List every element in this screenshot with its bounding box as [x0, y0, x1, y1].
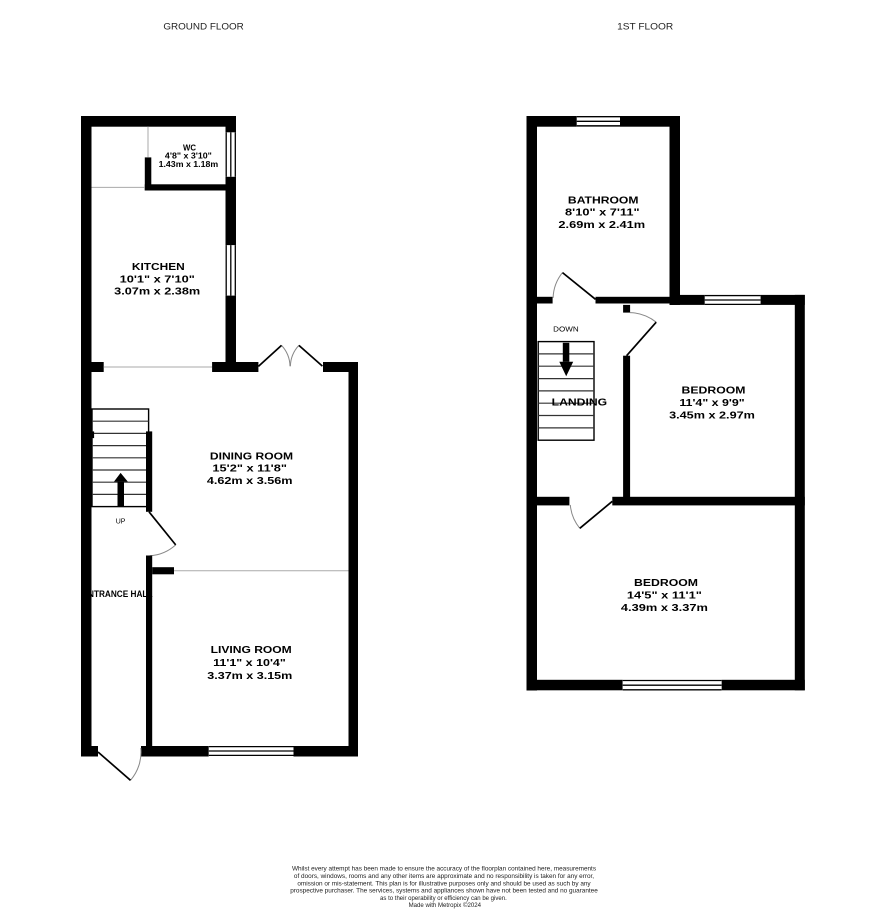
svg-text:1.43m x 1.18m: 1.43m x 1.18m — [159, 160, 219, 169]
svg-text:BATHROOM: BATHROOM — [568, 194, 639, 206]
svg-text:3.07m x 2.38m: 3.07m x 2.38m — [114, 286, 200, 298]
svg-text:BEDROOM: BEDROOM — [634, 577, 698, 589]
svg-text:omission or mis-statement. Thi: omission or mis-statement. This plan is … — [297, 880, 591, 887]
svg-text:DINING ROOM: DINING ROOM — [210, 450, 293, 462]
svg-text:LANDING: LANDING — [552, 397, 608, 409]
svg-text:of doors, windows, rooms and a: of doors, windows, rooms and any other i… — [294, 873, 594, 880]
svg-text:Made with Metropix ©2024: Made with Metropix ©2024 — [409, 901, 482, 909]
svg-text:4.62m x 3.56m: 4.62m x 3.56m — [207, 475, 293, 487]
svg-text:15'2" x 11'8": 15'2" x 11'8" — [212, 463, 287, 475]
svg-text:UP: UP — [116, 517, 126, 526]
svg-text:3.37m x 3.15m: 3.37m x 3.15m — [207, 670, 292, 682]
svg-text:as to their operability or eff: as to their operability or efficiency ca… — [380, 895, 507, 902]
svg-text:KITCHEN: KITCHEN — [132, 261, 185, 273]
svg-text:BEDROOM: BEDROOM — [682, 384, 746, 396]
svg-text:2.69m x 2.41m: 2.69m x 2.41m — [558, 219, 645, 231]
svg-text:ENTRANCE HALL: ENTRANCE HALL — [83, 589, 153, 599]
svg-text:11'1" x 10'4": 11'1" x 10'4" — [213, 657, 286, 669]
svg-text:LIVING ROOM: LIVING ROOM — [211, 644, 292, 656]
svg-text:8'10" x 7'11": 8'10" x 7'11" — [565, 207, 640, 219]
svg-text:DOWN: DOWN — [553, 325, 579, 334]
svg-text:11'4" x 9'9": 11'4" x 9'9" — [679, 397, 744, 409]
svg-text:1ST FLOOR: 1ST FLOOR — [617, 22, 673, 33]
svg-text:4.39m x 3.37m: 4.39m x 3.37m — [621, 602, 708, 614]
svg-text:prospective purchaser. The ser: prospective purchaser. The services, sys… — [290, 888, 598, 895]
svg-text:14'5" x 11'1": 14'5" x 11'1" — [627, 590, 702, 602]
svg-text:Whilst every attempt has been: Whilst every attempt has been made to en… — [292, 866, 596, 873]
svg-text:3.45m x 2.97m: 3.45m x 2.97m — [669, 409, 755, 421]
svg-text:GROUND FLOOR: GROUND FLOOR — [163, 22, 244, 33]
svg-text:10'1" x 7'10": 10'1" x 7'10" — [120, 273, 195, 285]
